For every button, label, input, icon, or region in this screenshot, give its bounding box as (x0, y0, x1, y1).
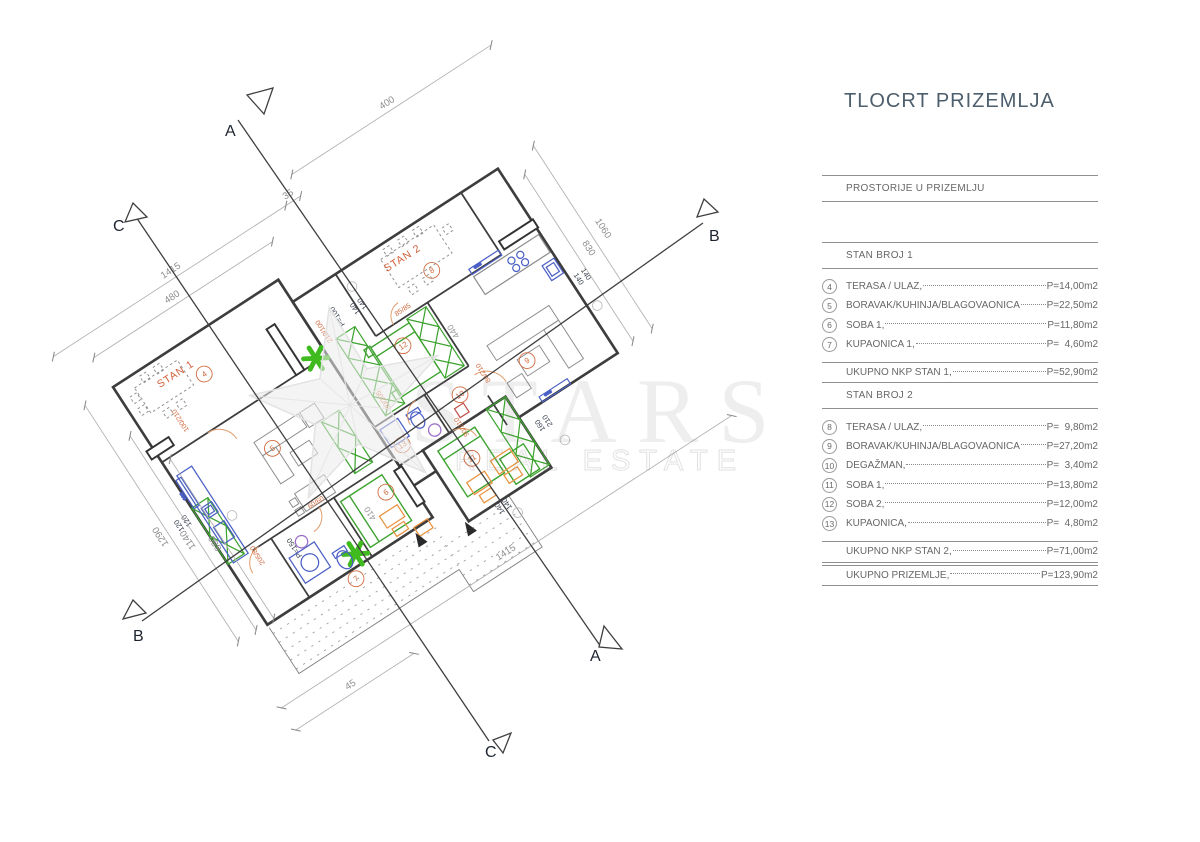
room-label: BORAVAK/KUHINJA/BLAGOVAONICA (846, 441, 1020, 452)
svg-text:1415: 1415 (494, 542, 518, 563)
svg-text:A: A (225, 123, 236, 140)
table-row: 12 SOBA 2, P=12,00m2 (822, 495, 1098, 514)
room-label: KUPAONICA 1, (846, 339, 915, 350)
dotted-leader (953, 371, 1046, 372)
room-number-badge: 11 (822, 478, 837, 493)
dotted-leader (950, 573, 1040, 574)
room-label: KUPAONICA, (846, 518, 907, 529)
total-row: UKUPNO NKP STAN 2, P=71,00m2 (822, 542, 1098, 561)
total-label: UKUPNO NKP STAN 2, (846, 546, 952, 557)
room-area: P=27,20m2 (1047, 441, 1098, 452)
room-label: BORAVAK/KUHINJA/BLAGOVAONICA (846, 300, 1020, 311)
room-number-badge: 13 (822, 516, 837, 531)
total-area: P=71,00m2 (1047, 546, 1098, 557)
stan2-section-title: STAN BROJ 2 (822, 383, 1098, 408)
room-area: P=22,50m2 (1047, 300, 1098, 311)
dotted-leader (953, 550, 1046, 551)
room-label: TERASA / ULAZ, (846, 281, 922, 292)
room-area: P= 9,80m2 (1047, 422, 1098, 433)
room-area: P=13,80m2 (1047, 480, 1098, 491)
section-flag-icon (123, 600, 146, 619)
dotted-leader (923, 425, 1045, 426)
dotted-leader (923, 285, 1045, 286)
total-label: UKUPNO NKP STAN 1, (846, 367, 952, 378)
dotted-leader (885, 323, 1046, 324)
divider (822, 585, 1098, 586)
svg-text:45: 45 (343, 678, 358, 693)
room-label: SOBA 1, (846, 480, 884, 491)
area-table: PROSTORIJE U PRIZEMLJU STAN BROJ 1 4 TER… (822, 175, 1098, 586)
room-number-badge: 8 (822, 420, 837, 435)
room-number-badge: 5 (822, 298, 837, 313)
svg-text:480: 480 (163, 288, 183, 306)
svg-text:830: 830 (579, 239, 597, 259)
svg-text:400: 400 (377, 94, 397, 112)
room-label: TERASA / ULAZ, (846, 422, 922, 433)
section-flag-icon (697, 199, 718, 217)
room-area: P= 3,40m2 (1047, 460, 1098, 471)
dotted-leader (906, 464, 1045, 465)
svg-text:C: C (485, 744, 497, 761)
table-header: PROSTORIJE U PRIZEMLJU (822, 176, 1098, 201)
room-area: P=11,80m2 (1047, 320, 1098, 331)
room-number-badge: 9 (822, 439, 837, 454)
room-area: P= 4,60m2 (1047, 339, 1098, 350)
svg-text:7: 7 (352, 574, 361, 584)
grand-total-area: P=123,90m2 (1041, 570, 1098, 581)
total-row: UKUPNO NKP STAN 1, P=52,90m2 (822, 363, 1098, 382)
table-row: 7 KUPAONICA 1, P= 4,60m2 (822, 335, 1098, 354)
room-area: P= 4,80m2 (1047, 518, 1098, 529)
dotted-leader (1021, 444, 1046, 445)
table-row: 9 BORAVAK/KUHINJA/BLAGOVAONICA P=27,20m2 (822, 437, 1098, 456)
section-flag-icon (125, 203, 147, 222)
room-label: SOBA 1, (846, 320, 884, 331)
floor-plan-page: { "title": "TLOCRT PRIZEMLJA", "watermar… (0, 0, 1200, 837)
room-number-badge: 10 (822, 458, 837, 473)
room-area: P=14,00m2 (1047, 281, 1098, 292)
table-row: 4 TERASA / ULAZ, P=14,00m2 (822, 277, 1098, 296)
dotted-leader (916, 343, 1046, 344)
room-number-badge: 4 (822, 279, 837, 294)
svg-text:C: C (113, 218, 125, 235)
dotted-leader (885, 483, 1045, 484)
table-row: 6 SOBA 1, P=11,80m2 (822, 316, 1098, 335)
room-area: P=12,00m2 (1047, 499, 1098, 510)
section-flag-icon (599, 626, 622, 649)
floor-plan-drawing: *** *** *** (0, 0, 840, 837)
dotted-leader (1021, 304, 1046, 305)
svg-text:1290: 1290 (150, 524, 171, 548)
room-label: SOBA 2, (846, 499, 884, 510)
floor-plan-svg: *** *** *** (0, 0, 840, 837)
svg-text:1415: 1415 (159, 261, 183, 282)
svg-text:B: B (709, 228, 720, 245)
total-area: P=52,90m2 (1047, 367, 1098, 378)
page-title: TLOCRT PRIZEMLJA (844, 90, 1098, 113)
svg-text:A: A (590, 648, 601, 665)
table-row: 8 TERASA / ULAZ, P= 9,80m2 (822, 417, 1098, 436)
table-row: 13 KUPAONICA, P= 4,80m2 (822, 514, 1098, 533)
room-number-badge: 7 (822, 337, 837, 352)
area-summary-panel: TLOCRT PRIZEMLJA PROSTORIJE U PRIZEMLJU … (822, 90, 1098, 586)
table-row: 5 BORAVAK/KUHINJA/BLAGOVAONICA P=22,50m2 (822, 296, 1098, 315)
room-number-badge: 6 (822, 318, 837, 333)
table-row: 10 DEGAŽMAN, P= 3,40m2 (822, 456, 1098, 475)
svg-text:1060: 1060 (592, 217, 613, 241)
watermark-subtitle: REAL ESTATE (455, 445, 745, 477)
stan1-section-title: STAN BROJ 1 (822, 243, 1098, 268)
dotted-leader (885, 502, 1045, 503)
grand-total-row: UKUPNO PRIZEMLJE, P=123,90m2 (822, 566, 1098, 585)
svg-text:B: B (133, 628, 144, 645)
room-label: DEGAŽMAN, (846, 460, 905, 471)
dotted-leader (908, 522, 1046, 523)
table-row: 11 SOBA 1, P=13,80m2 (822, 475, 1098, 494)
room-number-badge: 12 (822, 497, 837, 512)
grand-total-label: UKUPNO PRIZEMLJE, (846, 570, 949, 581)
section-flag-icon (247, 88, 273, 114)
